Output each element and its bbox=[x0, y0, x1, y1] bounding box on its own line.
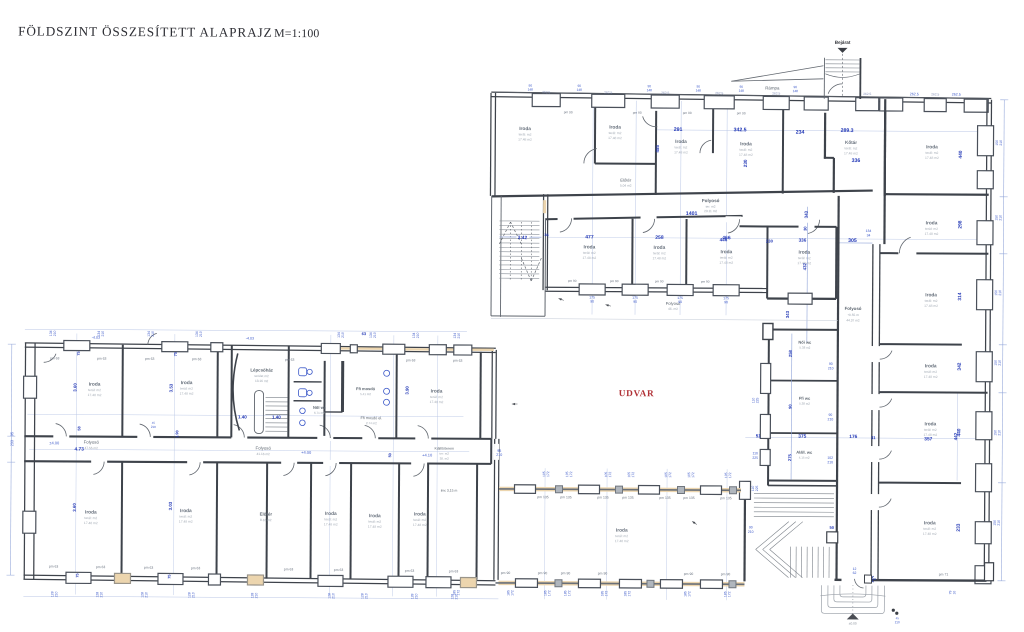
svg-text:17.48 m2: 17.48 m2 bbox=[430, 400, 444, 404]
svg-text:210: 210 bbox=[364, 593, 368, 599]
svg-text:172: 172 bbox=[627, 591, 631, 597]
svg-text:176: 176 bbox=[849, 434, 857, 440]
svg-text:342: 342 bbox=[957, 362, 963, 370]
svg-text:NőI wc: NőI wc bbox=[313, 405, 327, 410]
svg-text:440: 440 bbox=[956, 428, 962, 436]
svg-text:Iroda: Iroda bbox=[675, 139, 687, 145]
svg-text:Lépcsőház: Lépcsőház bbox=[250, 367, 274, 372]
svg-text:pm 90: pm 90 bbox=[737, 111, 746, 115]
svg-text:8.16 m2: 8.16 m2 bbox=[260, 518, 272, 522]
svg-text:1.40: 1.40 bbox=[238, 414, 247, 419]
svg-text:M=1:100: M=1:100 bbox=[274, 26, 320, 40]
svg-text:210: 210 bbox=[828, 366, 834, 370]
svg-text:pm 90: pm 90 bbox=[701, 280, 710, 284]
svg-text:pm 135: pm 135 bbox=[659, 496, 670, 500]
svg-text:17.48 m2: 17.48 m2 bbox=[925, 232, 939, 236]
svg-text:Iroda: Iroda bbox=[798, 250, 810, 256]
svg-text:289.3: 289.3 bbox=[841, 128, 854, 134]
svg-text:210: 210 bbox=[997, 520, 1001, 526]
svg-text:Iroda: Iroda bbox=[925, 363, 937, 369]
svg-text:210: 210 bbox=[99, 592, 103, 598]
svg-text:50: 50 bbox=[388, 453, 392, 457]
svg-text:75: 75 bbox=[167, 575, 171, 579]
svg-text:455: 455 bbox=[655, 145, 660, 153]
svg-text:Ffi mosdó el.: Ffi mosdó el. bbox=[361, 416, 383, 420]
svg-text:210: 210 bbox=[151, 425, 156, 429]
svg-text:3.03: 3.03 bbox=[168, 501, 173, 510]
svg-text:375: 375 bbox=[798, 434, 806, 440]
svg-text:pm 135: pm 135 bbox=[560, 495, 571, 499]
svg-text:Ffi mosdó: Ffi mosdó bbox=[356, 386, 376, 391]
svg-text:pm 90: pm 90 bbox=[501, 571, 511, 575]
svg-text:172: 172 bbox=[567, 590, 571, 596]
svg-text:Aláll. wc: Aláll. wc bbox=[796, 450, 813, 455]
svg-text:Folyosó: Folyosó bbox=[84, 440, 100, 445]
svg-text:terál: m2: terál: m2 bbox=[583, 251, 596, 255]
svg-text:148: 148 bbox=[739, 89, 745, 93]
svg-text:Iroda: Iroda bbox=[924, 421, 936, 427]
svg-text:172: 172 bbox=[604, 591, 608, 597]
svg-text:90: 90 bbox=[749, 525, 753, 529]
svg-text:terál: m2: terál: m2 bbox=[324, 517, 337, 521]
svg-text:134: 134 bbox=[866, 229, 872, 233]
svg-text:314: 314 bbox=[957, 292, 963, 300]
svg-text:3.90: 3.90 bbox=[405, 386, 410, 395]
svg-text:225: 225 bbox=[755, 485, 759, 491]
svg-text:90: 90 bbox=[829, 413, 833, 417]
svg-text:17.48 m2: 17.48 m2 bbox=[84, 521, 98, 525]
svg-text:90: 90 bbox=[590, 299, 594, 303]
svg-text:440: 440 bbox=[958, 150, 964, 158]
svg-text:Iroda: Iroda bbox=[926, 144, 938, 150]
svg-text:pm 90: pm 90 bbox=[721, 572, 731, 576]
svg-text:pm 90: pm 90 bbox=[561, 571, 571, 575]
svg-text:pm 90: pm 90 bbox=[538, 571, 548, 575]
svg-text:172: 172 bbox=[569, 471, 573, 477]
svg-text:ter: m2: ter: m2 bbox=[440, 452, 450, 456]
svg-text:75: 75 bbox=[77, 351, 81, 355]
svg-text:terál: m2: terál: m2 bbox=[609, 131, 622, 135]
svg-text:Iroda: Iroda bbox=[519, 126, 531, 132]
svg-text:210: 210 bbox=[999, 215, 1003, 221]
svg-text:pm 135: pm 135 bbox=[622, 496, 633, 500]
svg-text:258: 258 bbox=[788, 349, 793, 357]
svg-text:46. m2: 46. m2 bbox=[668, 307, 678, 311]
svg-text:Iroda: Iroda bbox=[584, 244, 596, 250]
svg-text:90: 90 bbox=[678, 300, 682, 304]
svg-text:Iroda: Iroda bbox=[89, 382, 101, 388]
svg-text:pm 135: pm 135 bbox=[537, 495, 548, 499]
svg-text:pm 63: pm 63 bbox=[144, 566, 154, 570]
svg-text:5.04 m2: 5.04 m2 bbox=[620, 184, 632, 188]
svg-text:pm 90: pm 90 bbox=[683, 111, 692, 115]
svg-text:Előtér: Előtér bbox=[260, 512, 273, 517]
svg-text:210: 210 bbox=[997, 430, 1001, 436]
svg-text:Iroda: Iroda bbox=[325, 511, 337, 517]
svg-text:terál: m2: terál: m2 bbox=[179, 515, 192, 519]
svg-text:262.5: 262.5 bbox=[863, 92, 871, 96]
svg-text:terál: m2: terál: m2 bbox=[924, 370, 937, 374]
svg-text:210: 210 bbox=[457, 333, 461, 339]
svg-text:172: 172 bbox=[691, 472, 695, 478]
svg-text:210: 210 bbox=[151, 331, 155, 337]
svg-text:pm 63: pm 63 bbox=[284, 567, 294, 571]
svg-text:+4.00: +4.00 bbox=[301, 450, 312, 455]
svg-text:pm 71: pm 71 bbox=[939, 572, 949, 576]
svg-text:51: 51 bbox=[756, 433, 762, 438]
svg-text:pm 135: pm 135 bbox=[597, 495, 608, 499]
svg-text:17.48 m2: 17.48 m2 bbox=[844, 151, 858, 155]
svg-text:terál: m2: terál: m2 bbox=[84, 516, 97, 520]
svg-text:343: 343 bbox=[804, 210, 809, 218]
svg-text:172: 172 bbox=[608, 472, 612, 478]
svg-text:pm 90: pm 90 bbox=[633, 111, 642, 115]
svg-text:336: 336 bbox=[799, 238, 807, 243]
svg-text:41.16 m2: 41.16 m2 bbox=[257, 452, 271, 456]
svg-text:terál: m2: terál: m2 bbox=[925, 299, 938, 303]
svg-text:Iroda: Iroda bbox=[181, 380, 193, 386]
svg-text:FÖLDSZINT ÖSSZESÍTETT ALAPRAJZ: FÖLDSZINT ÖSSZESÍTETT ALAPRAJZ bbox=[18, 23, 272, 39]
svg-text:225: 225 bbox=[752, 456, 758, 460]
svg-text:17.48 m2: 17.48 m2 bbox=[652, 256, 666, 260]
svg-text:Iroda: Iroda bbox=[720, 249, 732, 255]
svg-text:Folyosó: Folyosó bbox=[256, 446, 272, 451]
svg-text:90: 90 bbox=[633, 300, 637, 304]
svg-text:17.48 m2: 17.48 m2 bbox=[180, 392, 194, 396]
svg-text:5.38 m2: 5.38 m2 bbox=[799, 346, 810, 350]
svg-text:336: 336 bbox=[852, 158, 861, 164]
svg-text:terál: m2: terál: m2 bbox=[798, 256, 811, 260]
svg-text:±4.00: ±4.00 bbox=[49, 440, 60, 445]
svg-text:terál: m2: terál: m2 bbox=[88, 388, 101, 392]
svg-text:210: 210 bbox=[748, 530, 754, 534]
svg-text:Iroda: Iroda bbox=[369, 513, 381, 519]
svg-text:90: 90 bbox=[724, 300, 728, 304]
svg-text:305: 305 bbox=[848, 238, 857, 244]
svg-text:110: 110 bbox=[752, 451, 758, 455]
svg-text:17.48 m2: 17.48 m2 bbox=[924, 375, 938, 379]
svg-text:210: 210 bbox=[144, 592, 148, 598]
svg-text:pm 63: pm 63 bbox=[449, 569, 459, 573]
svg-text:Előtér: Előtér bbox=[620, 178, 632, 183]
svg-text:terál: m2: terál: m2 bbox=[180, 387, 193, 391]
svg-text:17.48 m2: 17.48 m2 bbox=[923, 433, 937, 437]
svg-text:210: 210 bbox=[895, 620, 900, 624]
svg-text:23.11 m2: 23.11 m2 bbox=[704, 209, 717, 213]
svg-text:262.5: 262.5 bbox=[542, 90, 550, 94]
svg-text:+4.10: +4.10 bbox=[422, 452, 433, 457]
svg-text:343: 343 bbox=[785, 310, 790, 318]
svg-text:210: 210 bbox=[199, 331, 203, 337]
svg-text:233: 233 bbox=[10, 440, 14, 446]
svg-text:Ffi wc: Ffi wc bbox=[799, 396, 811, 401]
svg-text:90: 90 bbox=[829, 362, 833, 366]
svg-text:±0.00: ±0.00 bbox=[849, 621, 857, 625]
svg-text:pm 63: pm 63 bbox=[50, 356, 60, 360]
svg-text:210: 210 bbox=[53, 330, 57, 336]
svg-text:pm 63: pm 63 bbox=[285, 358, 295, 362]
svg-text:172: 172 bbox=[547, 590, 551, 596]
svg-text:Rámpa: Rámpa bbox=[765, 85, 780, 90]
svg-text:pm 63: pm 63 bbox=[97, 357, 107, 361]
svg-text:pm 63: pm 63 bbox=[145, 357, 155, 361]
svg-text:terál: m2: terál: m2 bbox=[925, 227, 938, 231]
svg-text:210: 210 bbox=[191, 592, 195, 598]
svg-text:148: 148 bbox=[577, 88, 583, 92]
svg-text:44.37 m2: 44.37 m2 bbox=[846, 318, 860, 322]
svg-text:pm 135: pm 135 bbox=[720, 496, 731, 500]
svg-text:Iroda: Iroda bbox=[616, 528, 628, 534]
svg-text:pm 90: pm 90 bbox=[684, 572, 694, 576]
svg-text:4.73: 4.73 bbox=[75, 446, 85, 452]
svg-text:148: 148 bbox=[647, 88, 653, 92]
svg-text:210: 210 bbox=[414, 594, 418, 600]
svg-text:210: 210 bbox=[999, 140, 1003, 146]
svg-text:58: 58 bbox=[77, 426, 81, 430]
svg-text:pm 63: pm 63 bbox=[96, 565, 106, 569]
svg-text:pm 63: pm 63 bbox=[334, 568, 344, 572]
svg-text:16: 16 bbox=[952, 591, 956, 595]
svg-text:ter: m2: ter: m2 bbox=[706, 205, 716, 209]
svg-text:172: 172 bbox=[668, 472, 672, 478]
svg-text:pm 63: pm 63 bbox=[49, 565, 59, 569]
svg-text:210: 210 bbox=[101, 331, 105, 337]
svg-text:357: 357 bbox=[924, 436, 932, 442]
svg-text:pm 135: pm 135 bbox=[683, 496, 694, 500]
svg-text:pm 63: pm 63 bbox=[453, 359, 463, 363]
svg-text:262.5: 262.5 bbox=[931, 92, 939, 96]
svg-text:172: 172 bbox=[546, 471, 550, 477]
svg-text:17.48 m2: 17.48 m2 bbox=[413, 523, 427, 527]
svg-text:Kőtár: Kőtár bbox=[845, 140, 857, 145]
svg-text:Folyosó: Folyosó bbox=[702, 198, 720, 203]
svg-text:102: 102 bbox=[827, 456, 833, 460]
svg-text:172: 172 bbox=[456, 590, 460, 596]
svg-text:pm 63: pm 63 bbox=[405, 569, 415, 573]
svg-text:258: 258 bbox=[655, 235, 664, 241]
svg-text:148: 148 bbox=[528, 88, 534, 92]
svg-text:291: 291 bbox=[674, 127, 683, 133]
svg-text:pm 90: pm 90 bbox=[564, 110, 573, 114]
svg-text:17.48 m2: 17.48 m2 bbox=[324, 522, 338, 526]
svg-text:262.5: 262.5 bbox=[661, 91, 669, 95]
svg-text:210: 210 bbox=[373, 332, 377, 338]
svg-text:17.48 m2: 17.48 m2 bbox=[923, 532, 937, 536]
svg-text:Iroda: Iroda bbox=[609, 125, 621, 131]
svg-text:-4.03: -4.03 bbox=[246, 336, 254, 340]
svg-text:terál: m2: terál: m2 bbox=[368, 520, 381, 524]
svg-text:terál: m2: terál: m2 bbox=[720, 256, 733, 260]
svg-text:47.55 m2: 47.55 m2 bbox=[85, 446, 99, 450]
svg-text:95: 95 bbox=[10, 432, 14, 436]
svg-text:36: 36 bbox=[544, 233, 548, 237]
svg-text:Iroda: Iroda bbox=[85, 510, 97, 516]
svg-text:210: 210 bbox=[254, 593, 258, 599]
svg-text:210: 210 bbox=[998, 360, 1002, 366]
svg-text:17.48 m2: 17.48 m2 bbox=[88, 393, 102, 397]
svg-text:terál: m2: terál: m2 bbox=[675, 145, 688, 149]
svg-text:225: 225 bbox=[756, 397, 760, 403]
svg-text:Folyosó: Folyosó bbox=[845, 306, 862, 311]
svg-text:17.48 m2: 17.48 m2 bbox=[925, 156, 939, 160]
svg-text:3.42: 3.42 bbox=[518, 235, 528, 241]
svg-text:17.48 m2: 17.48 m2 bbox=[719, 261, 733, 265]
svg-text:terál: m2: terál: m2 bbox=[615, 534, 628, 538]
svg-text:3.53: 3.53 bbox=[169, 383, 174, 392]
svg-text:432: 432 bbox=[802, 262, 807, 270]
svg-text:UDVAR: UDVAR bbox=[619, 388, 655, 398]
svg-text:17.48 m2: 17.48 m2 bbox=[615, 539, 629, 543]
svg-text:34: 34 bbox=[867, 234, 871, 238]
svg-text:31: 31 bbox=[871, 435, 876, 440]
svg-text:Iroda: Iroda bbox=[654, 245, 666, 251]
svg-text:234: 234 bbox=[796, 130, 805, 136]
svg-text:298: 298 bbox=[958, 220, 964, 228]
svg-text:262.5: 262.5 bbox=[952, 93, 961, 97]
svg-text:terület m2: terület m2 bbox=[255, 374, 269, 378]
svg-text:172: 172 bbox=[631, 472, 635, 478]
svg-text:210: 210 bbox=[827, 460, 833, 464]
svg-text:terál: m2: terál: m2 bbox=[413, 518, 426, 522]
svg-text:62: 62 bbox=[853, 571, 857, 575]
svg-text:pm 90: pm 90 bbox=[568, 279, 577, 283]
svg-text:1.40: 1.40 bbox=[272, 415, 281, 420]
svg-text:210: 210 bbox=[496, 453, 502, 457]
svg-text:172: 172 bbox=[728, 472, 732, 478]
svg-text:Bejárat: Bejárat bbox=[835, 40, 851, 45]
svg-text:6.71 m2: 6.71 m2 bbox=[314, 411, 325, 415]
svg-text:5.38 m2: 5.38 m2 bbox=[799, 402, 810, 406]
svg-text:terál: m2: terál: m2 bbox=[923, 527, 936, 531]
svg-text:+0.55 m: +0.55 m bbox=[847, 313, 859, 317]
svg-text:pm 63: pm 63 bbox=[406, 358, 416, 362]
svg-text:262.5: 262.5 bbox=[604, 91, 612, 95]
svg-text:210: 210 bbox=[416, 333, 420, 339]
svg-text:148: 148 bbox=[793, 89, 799, 93]
svg-text:275: 275 bbox=[787, 453, 792, 461]
svg-text:233: 233 bbox=[956, 523, 962, 531]
svg-text:210: 210 bbox=[828, 417, 834, 421]
svg-text:terál: m2: terál: m2 bbox=[926, 151, 939, 155]
svg-text:342.5: 342.5 bbox=[734, 127, 747, 133]
svg-text:pm 90: pm 90 bbox=[610, 279, 619, 283]
svg-text:3.60: 3.60 bbox=[73, 383, 78, 392]
svg-text:Iroda: Iroda bbox=[740, 141, 752, 147]
svg-text:38. m2: 38. m2 bbox=[440, 457, 450, 461]
svg-text:terál: m2: terál: m2 bbox=[653, 251, 666, 255]
svg-text:terál: m2: terál: m2 bbox=[845, 146, 858, 150]
svg-text:terál: m2: terál: m2 bbox=[430, 395, 443, 399]
svg-text:172: 172 bbox=[687, 591, 691, 597]
svg-text:4.15 m2: 4.15 m2 bbox=[799, 456, 810, 460]
svg-text:5.41 m2: 5.41 m2 bbox=[360, 392, 371, 396]
svg-text:pm 90: pm 90 bbox=[598, 571, 608, 575]
svg-text:210: 210 bbox=[998, 290, 1002, 296]
svg-text:172: 172 bbox=[727, 591, 731, 597]
svg-text:Iroda: Iroda bbox=[180, 508, 192, 514]
svg-text:230: 230 bbox=[743, 159, 748, 167]
svg-text:17.48 m2: 17.48 m2 bbox=[608, 136, 622, 140]
svg-text:Iroda: Iroda bbox=[431, 389, 443, 395]
svg-text:477: 477 bbox=[585, 234, 594, 240]
svg-text:pm 63: pm 63 bbox=[192, 357, 202, 361]
svg-text:75: 75 bbox=[75, 573, 79, 577]
svg-text:17.48 m2: 17.48 m2 bbox=[739, 153, 753, 157]
svg-text:446: 446 bbox=[720, 237, 728, 242]
svg-text:Női wc: Női wc bbox=[798, 340, 812, 345]
svg-text:1401: 1401 bbox=[686, 211, 698, 217]
svg-text:17.48 m2: 17.48 m2 bbox=[582, 256, 596, 260]
svg-text:172: 172 bbox=[510, 590, 514, 596]
svg-text:262.5: 262.5 bbox=[772, 91, 780, 95]
svg-text:pm 90: pm 90 bbox=[655, 279, 664, 283]
svg-text:3.60: 3.60 bbox=[72, 503, 77, 512]
svg-text:17.48 m2: 17.48 m2 bbox=[518, 138, 532, 142]
svg-text:210: 210 bbox=[54, 591, 58, 597]
svg-text:262.5: 262.5 bbox=[715, 91, 723, 95]
svg-text:lmc 3,15 m: lmc 3,15 m bbox=[441, 489, 458, 493]
svg-text:17.48 m2: 17.48 m2 bbox=[179, 520, 193, 524]
svg-text:terál: m2: terál: m2 bbox=[740, 148, 753, 152]
svg-text:Iroda: Iroda bbox=[414, 511, 426, 517]
svg-text:Kiállítóterem: Kiállítóterem bbox=[434, 447, 454, 451]
svg-text:75: 75 bbox=[174, 352, 178, 356]
svg-text:Iroda: Iroda bbox=[924, 520, 936, 526]
svg-text:210: 210 bbox=[331, 593, 335, 599]
svg-text:Iroda: Iroda bbox=[925, 292, 937, 298]
svg-text:17.48 m2: 17.48 m2 bbox=[924, 304, 938, 308]
svg-text:pm 63: pm 63 bbox=[191, 566, 201, 570]
svg-text:148: 148 bbox=[696, 89, 702, 93]
svg-text:13.16 m2: 13.16 m2 bbox=[255, 379, 269, 383]
svg-text:262.5: 262.5 bbox=[910, 92, 919, 96]
svg-text:1.90: 1.90 bbox=[175, 430, 179, 437]
svg-text:Iroda: Iroda bbox=[926, 220, 938, 226]
svg-text:terál: m2: terál: m2 bbox=[924, 428, 937, 432]
svg-text:17.48 m2: 17.48 m2 bbox=[674, 150, 688, 154]
svg-text:2.74 m2: 2.74 m2 bbox=[366, 421, 377, 425]
svg-text:230: 230 bbox=[766, 238, 774, 243]
svg-text:210: 210 bbox=[341, 332, 345, 338]
svg-text:17.48 m2: 17.48 m2 bbox=[368, 525, 382, 529]
svg-text:terál: m2: terál: m2 bbox=[519, 133, 532, 137]
